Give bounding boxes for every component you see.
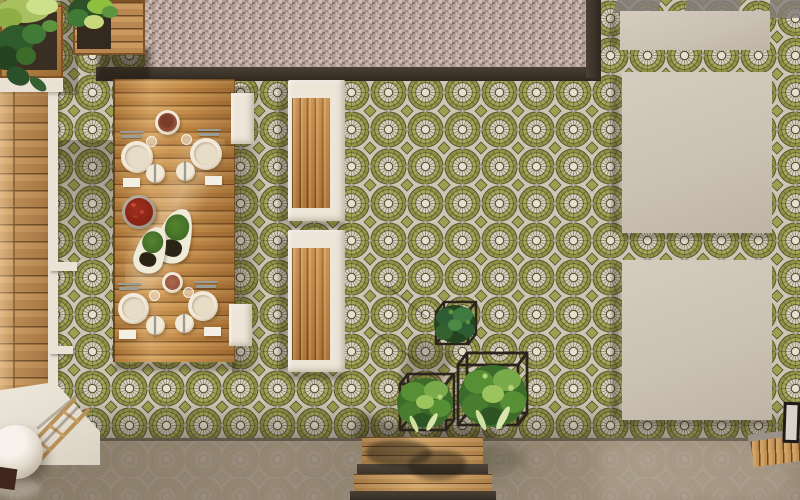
- table-bottom-shadow: [113, 362, 235, 371]
- fork-bottom-left: [117, 283, 141, 285]
- red-salad-bowl-food: [125, 198, 153, 226]
- fork-top-right: [197, 129, 221, 131]
- paver-middle: [622, 72, 772, 233]
- patio-render: [0, 0, 800, 500]
- black-frame: [782, 402, 800, 444]
- bench-2-bottom-shadow: [288, 372, 345, 380]
- glass-bottom-left: [149, 290, 160, 301]
- paver-shadow: [622, 420, 772, 429]
- bench-2-slats: [292, 248, 330, 360]
- spoon-top-right: [199, 133, 219, 136]
- spoon-bottom-left: [119, 287, 139, 290]
- bench-1: [288, 80, 345, 221]
- plant-cube-3: [455, 358, 535, 434]
- stool-bottom-right: [229, 304, 252, 346]
- bench-1-bottom-shadow: [288, 221, 345, 228]
- dinner-plate-bottom-left: [118, 293, 149, 324]
- spoon-bottom-right: [196, 285, 216, 288]
- stool-top-right: [231, 93, 254, 144]
- shadow-top-right-3: [770, 0, 800, 18]
- butter-knife-top-left: [154, 163, 156, 184]
- fork-top-left: [120, 131, 144, 133]
- napkin-top-left: [123, 178, 140, 187]
- dinner-plate-top-right: [190, 138, 222, 170]
- napkin-bottom-right: [204, 327, 221, 336]
- glass-top-right: [181, 134, 192, 145]
- step-riser-2: [350, 491, 496, 500]
- gravel-bed: [145, 0, 586, 67]
- paver-shadow: [622, 233, 772, 242]
- shadow-left-of-table: [56, 140, 114, 260]
- white-bar-lower: [50, 346, 73, 354]
- deck-white-rim: [48, 88, 58, 410]
- planter-plants-b: [66, 0, 122, 38]
- deck-left-light-strip: [0, 88, 15, 400]
- dark-box-corner: [0, 467, 17, 490]
- gravel-border-right: [586, 0, 601, 78]
- plant-cube-1: [430, 300, 482, 350]
- serving-bowl-top-food: [158, 113, 177, 132]
- spoon-top-left: [122, 135, 142, 138]
- butter-knife-top-right: [184, 161, 186, 182]
- fork-bottom-right: [194, 281, 218, 283]
- bench-1-slats: [292, 98, 330, 208]
- paver-top: [620, 11, 770, 50]
- butter-knife-bottom-left: [154, 315, 156, 336]
- napkin-bottom-left: [119, 330, 136, 339]
- napkin-top-right: [205, 176, 222, 185]
- dinner-plate-bottom-right: [188, 291, 218, 321]
- butter-knife-bottom-right: [183, 313, 185, 334]
- white-bar-upper: [50, 262, 77, 271]
- bench-2: [288, 230, 345, 372]
- paver-bottom: [622, 260, 772, 420]
- platform-plant-shadow-2: [408, 450, 466, 480]
- serving-bowl-bottom-food: [165, 275, 180, 290]
